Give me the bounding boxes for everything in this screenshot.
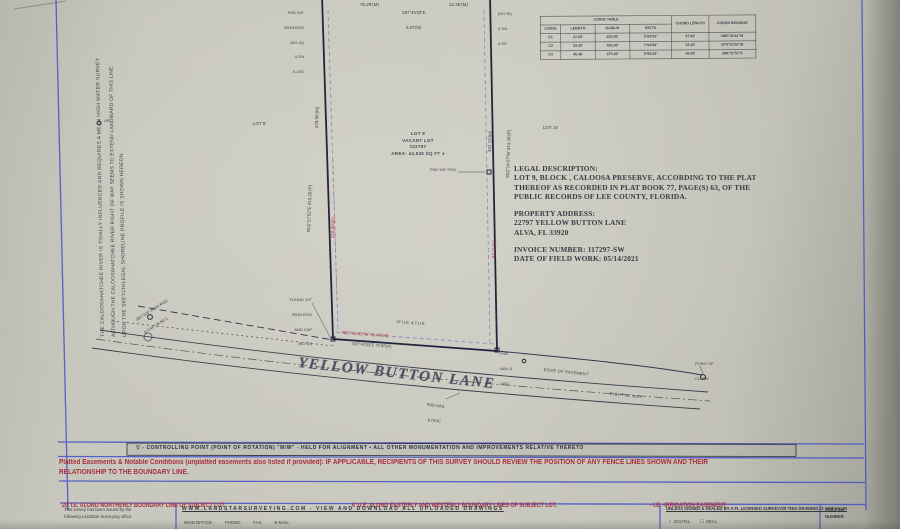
lot-name: LOT 9	[376, 131, 460, 138]
footer-job-label-2: NUMBER	[825, 514, 844, 519]
monument-mid-right: FND 5/8" ROD	[430, 168, 456, 173]
scan-shadow-right	[864, 0, 900, 529]
monument-top-right: (NO ID) 0.3'N 0.9'E	[498, 2, 512, 55]
legal-line: THEREOF AS RECORDED IN PLAT BOOK 77, PAG…	[514, 183, 776, 192]
conditions-line-2: RELATIONSHIP TO THE BOUNDARY LINE.	[59, 469, 189, 476]
curve-table: CURVE TABLE CHORD LENGTH CHORD BEARING C…	[540, 14, 756, 59]
col-length: LENGTH	[561, 25, 596, 34]
dim-west-deed: 218.99'(D)	[330, 217, 336, 238]
footer-portal-header: WWW.LANDSTARSURVEYING.COM - VIEW AND DOW…	[182, 507, 504, 513]
monument-bottom-right: FND NAIL & DISC	[500, 342, 513, 395]
property-address-heading: PROPERTY ADDRESS:	[514, 209, 776, 218]
col-radius: RADIUS	[595, 24, 629, 33]
dim-north-measured: 76.29'(M)	[360, 2, 379, 7]
col-chord-length: CHORD LENGTH	[672, 15, 709, 33]
lot-status: VACANT LOT	[376, 138, 460, 145]
lot-number: #22797	[376, 144, 460, 151]
dim-north-measured-2: 12.36'(M)	[449, 2, 468, 7]
scanned-survey-page: THE CALOOSAHATCHEE RIVER IS TIDALLY INFL…	[0, 0, 900, 529]
legend-strip: ▽ - CONTROLLING POINT (POINT OF ROTATION…	[136, 445, 584, 451]
lot-boundary	[322, 0, 497, 351]
property-address-line: ALVA, FL 33920	[514, 228, 776, 237]
footer-issued-line-1: This survey has been issued by the	[64, 507, 131, 512]
curve-row: C345.46' 375.00'6°56'44" 45.43'S86°11'52…	[541, 49, 756, 59]
scan-shadow-bottom	[0, 520, 900, 529]
property-address-line: 22797 YELLOW BUTTON LANE	[514, 218, 776, 227]
dim-east-deed: 82.11'(D)	[491, 240, 497, 258]
legal-line: PUBLIC RECORDS OF LEE COUNTY, FLORIDA.	[514, 192, 776, 201]
footer-job-label-1: JOB/FILE	[825, 507, 844, 512]
field-work-date: DATE OF FIELD WORK: 05/14/2021	[514, 254, 776, 263]
point-of-curve-label: POINT OF CURVE	[695, 352, 714, 391]
col-delta: DELTA	[630, 24, 672, 33]
monument-top-left: FND 5/8" IRON ROD (NO ID) 0.3'N 0.18'E	[256, 1, 304, 84]
utility-pole-label: UP	[104, 119, 110, 124]
lot-area: AREA: 44,530 SQ FT ±	[376, 151, 460, 158]
footer-issued-line-2: following LandStar Surveying office:	[64, 514, 132, 519]
legal-heading: LEGAL DESCRIPTION:	[514, 164, 776, 173]
col-chord-bearing: CHORD BEARING	[709, 15, 756, 33]
neighbor-lot-left: LOT 8	[253, 121, 265, 126]
neighbor-lot-right: LOT 10	[543, 125, 558, 130]
footer-seal-header: UNLESS SIGNED & SEALED BY A FL LICENSED …	[666, 507, 847, 512]
dim-east-measured: 331.15'(M)	[487, 131, 493, 153]
dim-west-measured: 278.96'(M)	[314, 107, 320, 129]
easement-dashes	[328, 10, 494, 345]
paper-corner-line	[14, 1, 66, 9]
invoice-number: INVOICE NUMBER: 117297-SW	[514, 245, 776, 254]
col-curve: CURVE	[540, 25, 560, 34]
conditions-line-1: Platted Easements & Notable Conditions (…	[59, 459, 801, 466]
monument-bottom-left: FOUND 1/2" IRON ROD AND CAP (NO ID)	[272, 288, 312, 356]
dim-north-bearing: S87°45'33"E 6.07'(M)	[402, 0, 426, 40]
legal-description-block: LEGAL DESCRIPTION: LOT 9, BLOCK , CALOOS…	[514, 164, 776, 264]
lot-label: LOT 9 VACANT LOT #22797 AREA: 44,530 SQ …	[376, 131, 460, 157]
legal-line: LOT 9, BLOCK , CALOOSA PRESERVE, ACCORDI…	[514, 173, 776, 182]
